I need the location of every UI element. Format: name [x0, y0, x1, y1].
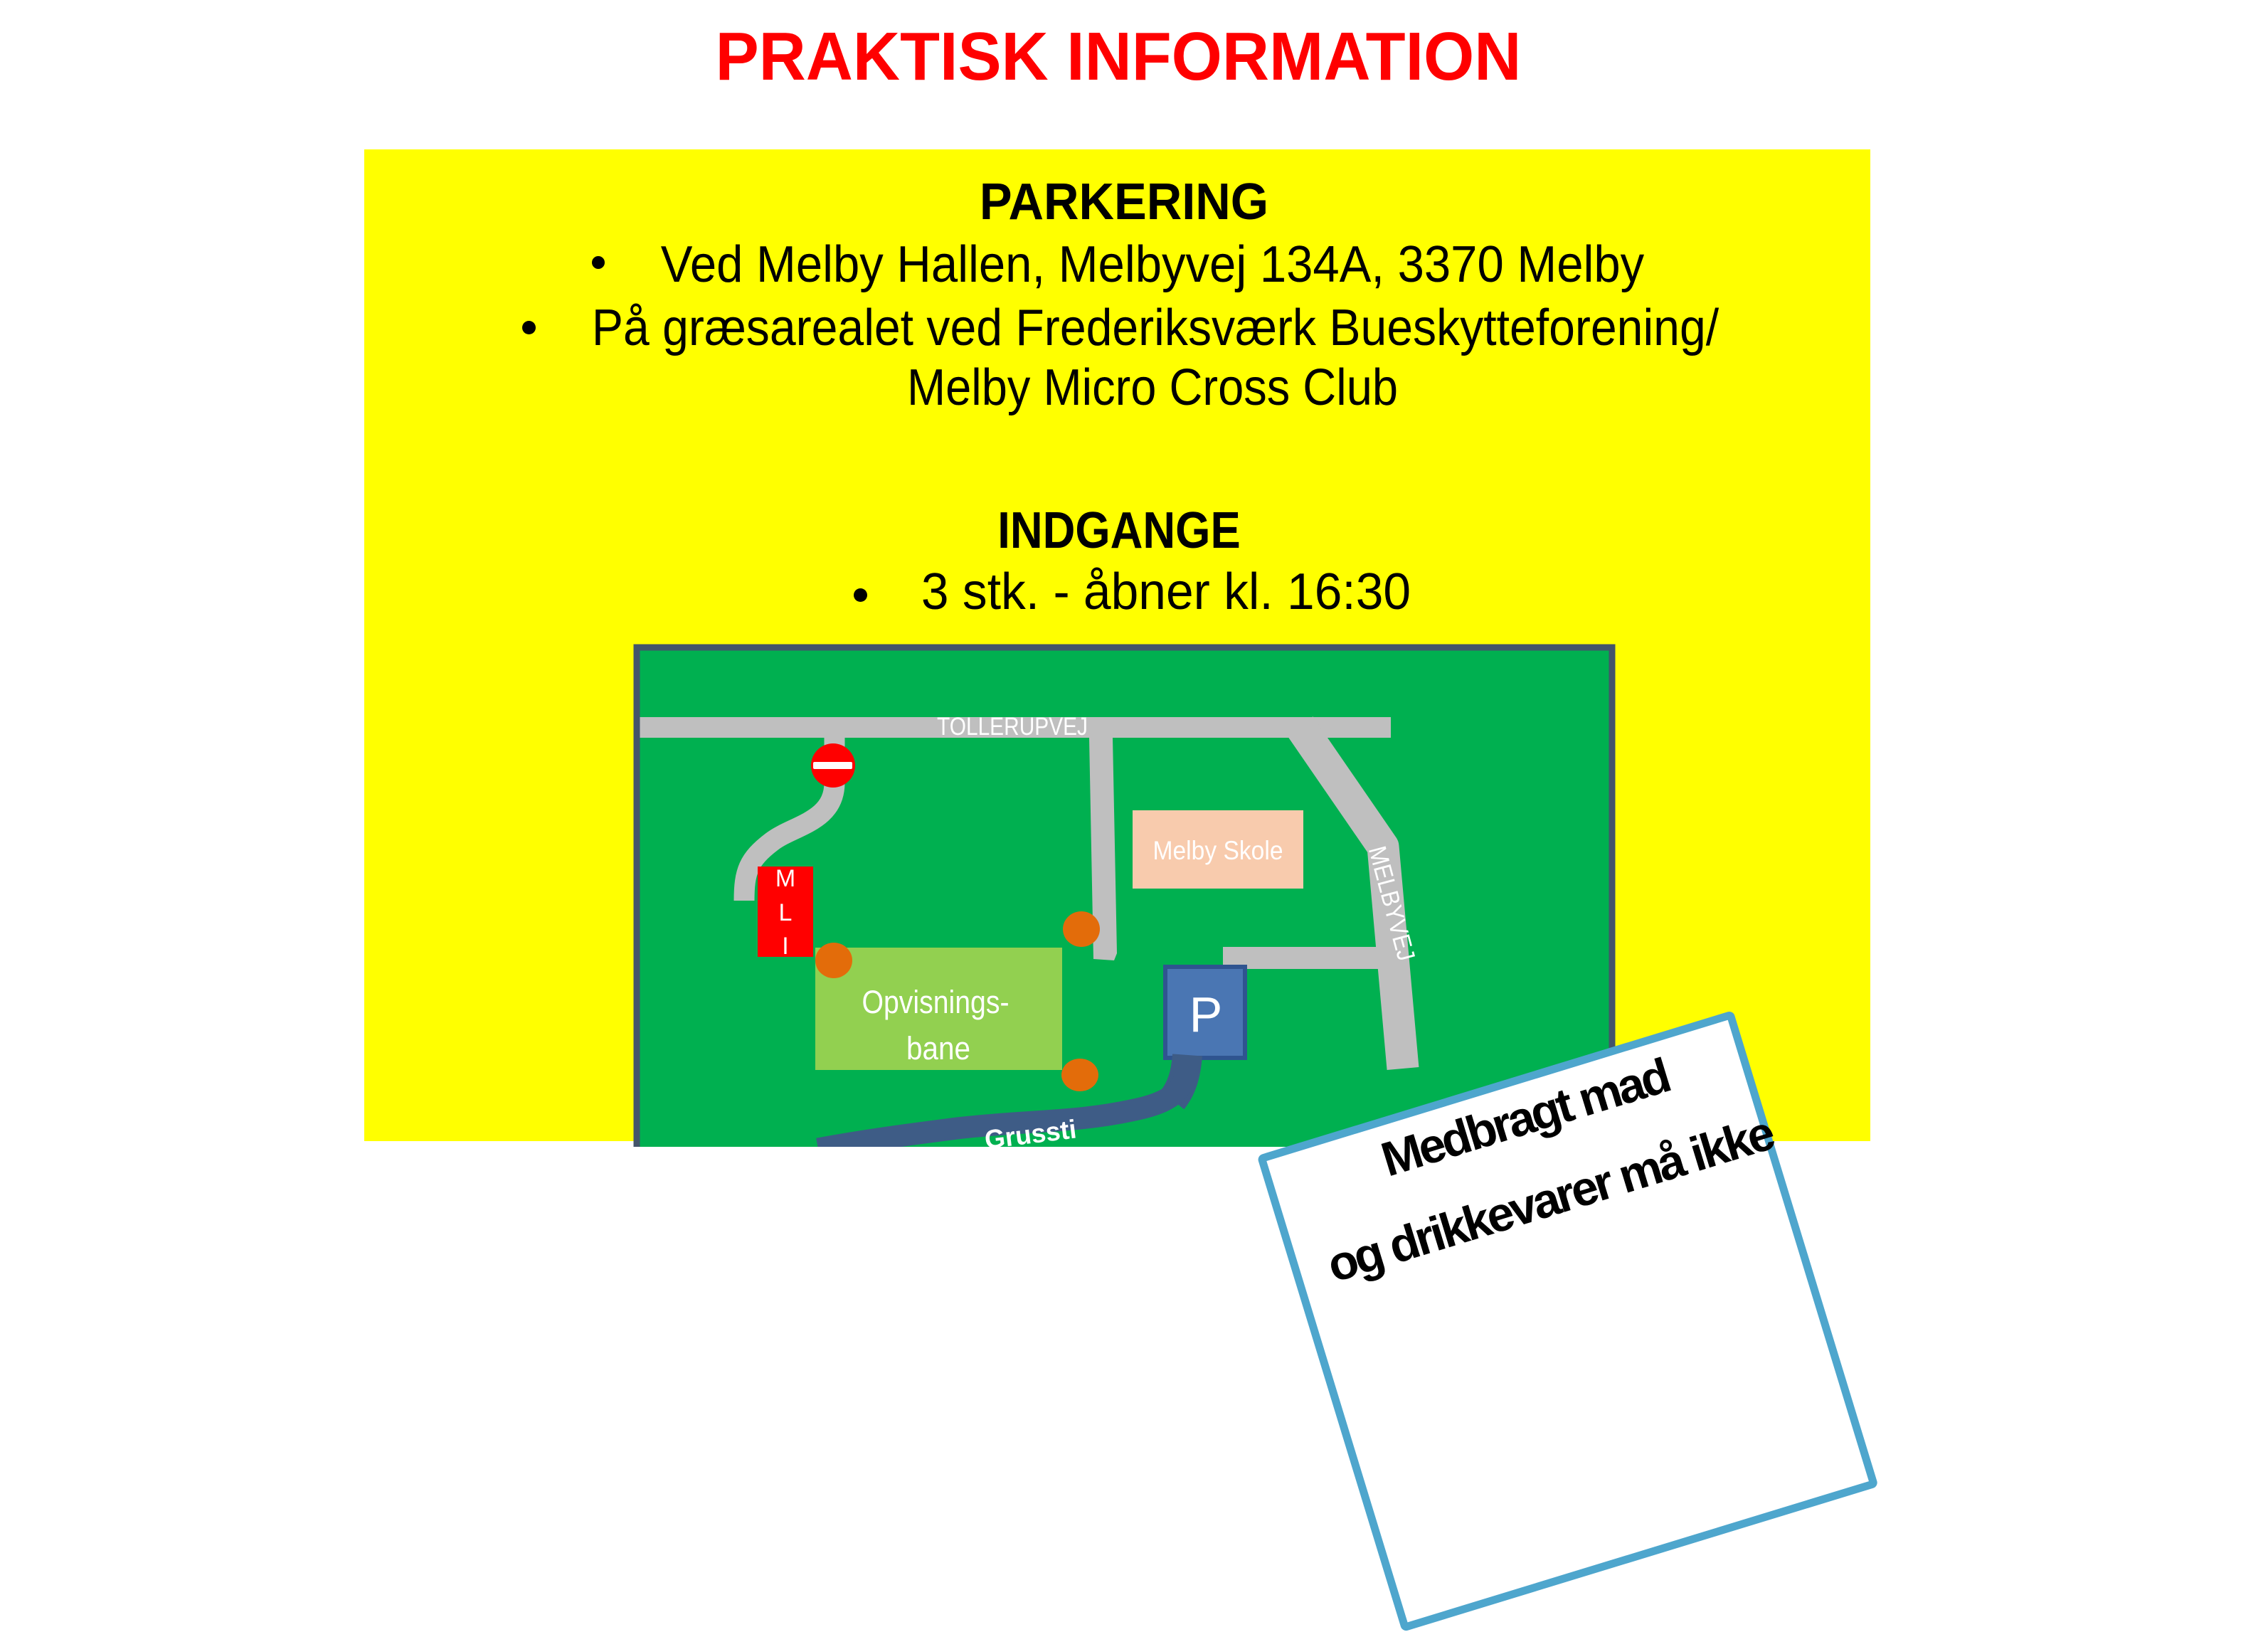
svg-text:L: L — [779, 899, 793, 926]
svg-text:bane: bane — [906, 1030, 970, 1066]
svg-text:I: I — [782, 933, 788, 960]
svg-text:Opvisnings-: Opvisnings- — [862, 984, 1010, 1020]
svg-text:TOLLERUPVEJ: TOLLERUPVEJ — [937, 713, 1088, 741]
svg-text:P: P — [1189, 987, 1223, 1042]
svg-text:M: M — [775, 865, 795, 892]
svg-text:Melby Skole: Melby Skole — [1153, 836, 1283, 865]
